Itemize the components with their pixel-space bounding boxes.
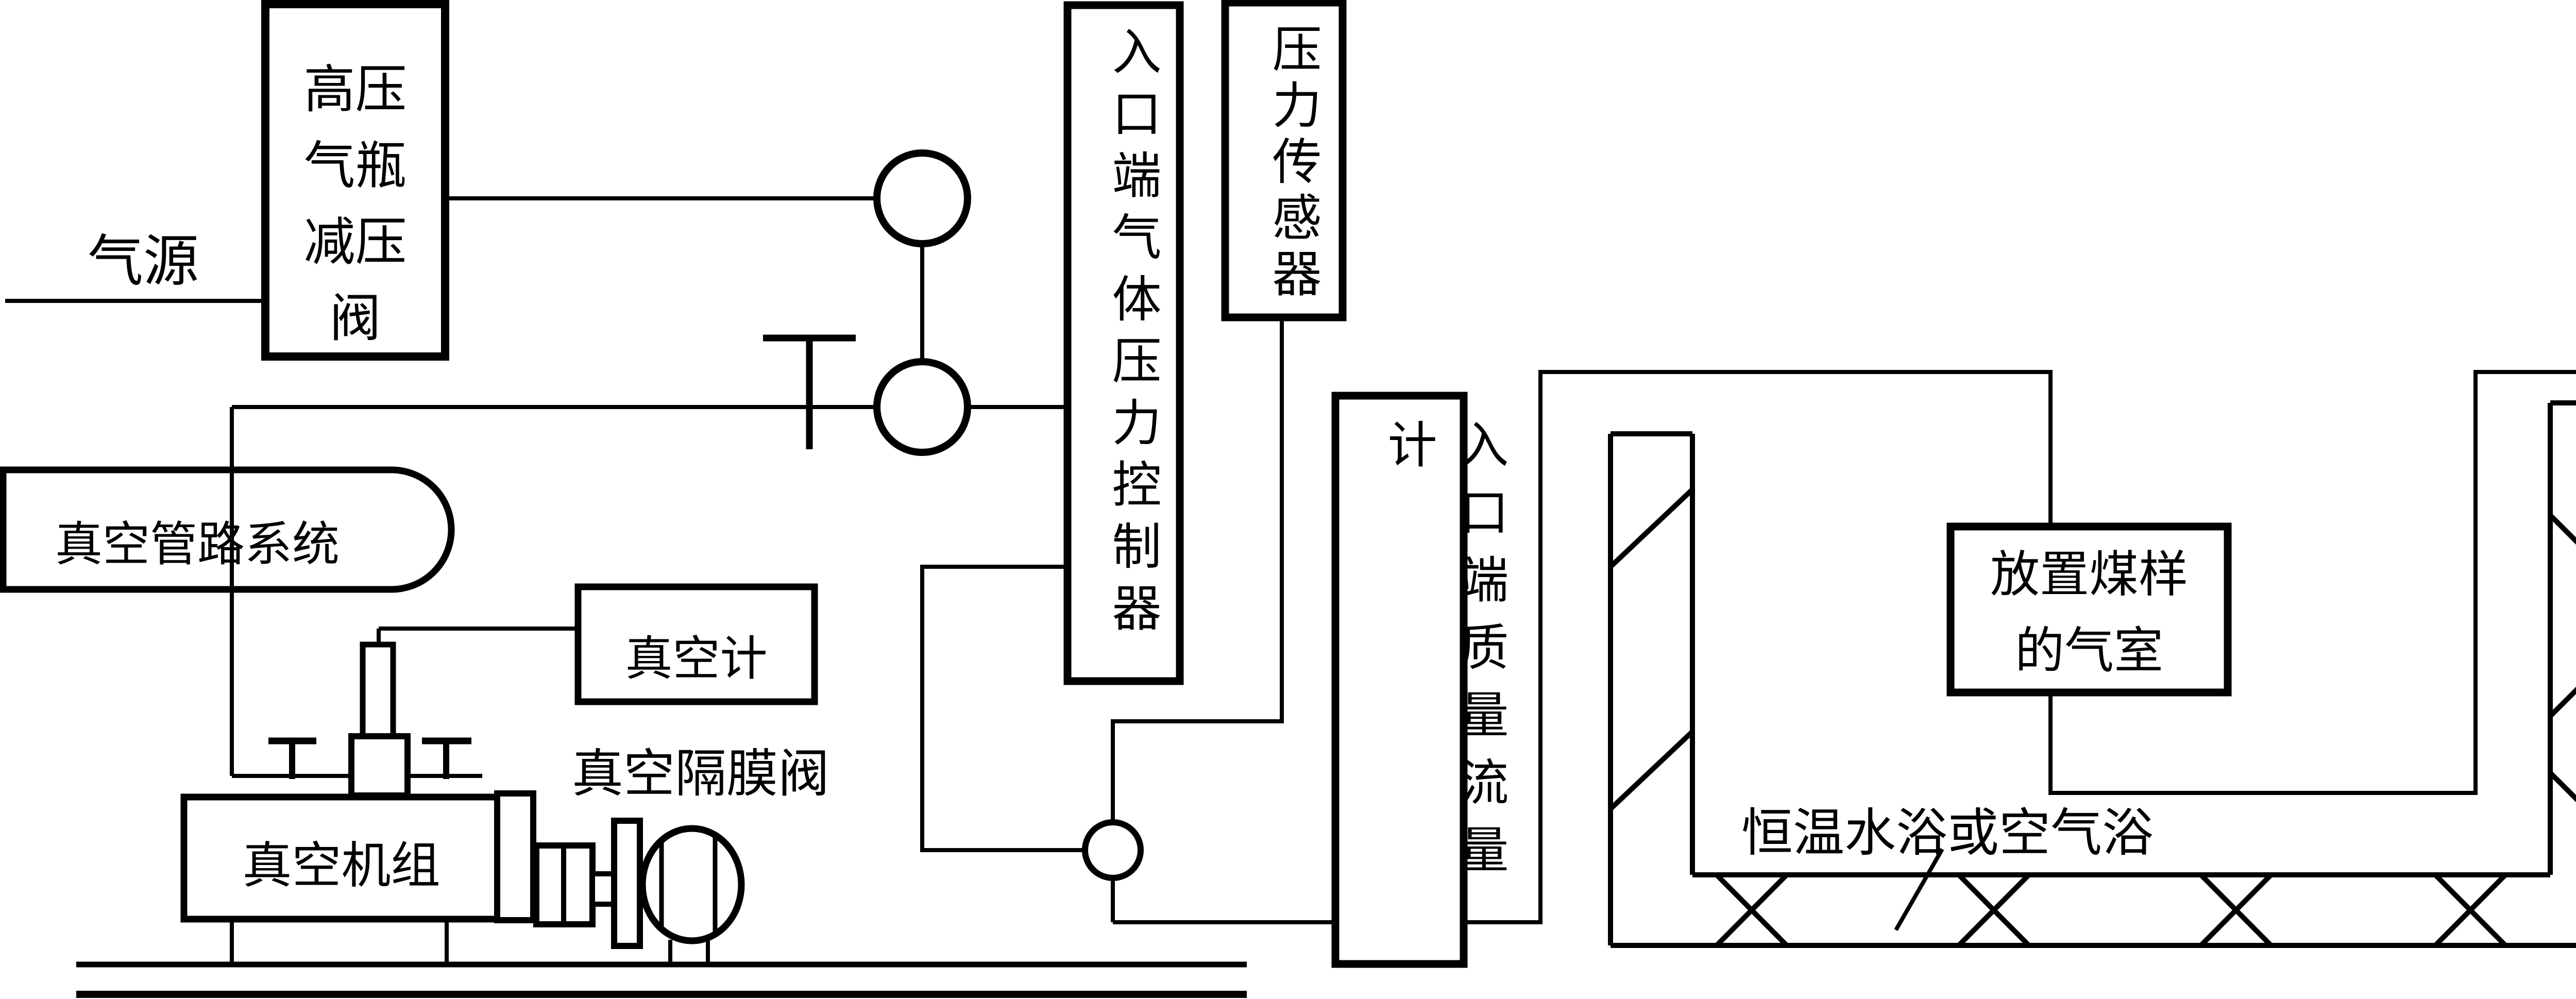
- valve-flange-plate: [614, 821, 640, 946]
- thermostat-bath-label: 恒温水浴或空气浴: [1726, 791, 2169, 866]
- vacuum-pump-unit-label: 真空机组: [184, 825, 499, 897]
- gas-source-label: 气源: [61, 216, 226, 297]
- controller-bypass-loop: [922, 567, 1085, 850]
- pump-port-upper: [363, 645, 393, 736]
- vacuum-diaphragm-valve-label: 真空隔膜阀: [536, 732, 866, 806]
- hp-regulator-label: 高压 气瓶 减压 阀: [265, 52, 445, 357]
- hp-regulator-line1: 高压: [265, 52, 445, 128]
- hp-regulator-line4: 阀: [265, 280, 445, 357]
- diaphragm-valve-body: [642, 828, 741, 941]
- inlet-sensor-label: 压力传感器: [1257, 23, 1328, 304]
- coal-chamber-line1: 放置煤样: [1951, 537, 2228, 613]
- vacuum-line-system-label: 真空管路系统: [3, 506, 392, 574]
- valve-circle-top: [877, 153, 968, 244]
- pump-end-plate: [497, 793, 533, 920]
- coal-gas-adsorption-apparatus-diagram: 气源 高压 气瓶 减压 阀 真空管路系统 真空计 真空隔膜阀 真空机组 入口端气…: [0, 0, 2576, 999]
- inlet-junction-valve: [1085, 822, 1141, 878]
- valve-circle-bottom: [877, 362, 968, 452]
- coal-chamber-label: 放置煤样 的气室: [1951, 537, 2228, 689]
- pump-port-lower: [351, 736, 408, 795]
- bath-left-wall: [1611, 434, 1692, 945]
- bath-bottom-band: [1611, 875, 2576, 945]
- inlet-controller-label: 入口端气体压力控制器: [1096, 26, 1168, 681]
- bath-right-wall: [2550, 403, 2576, 945]
- coupling-neck: [592, 874, 614, 904]
- vacuum-gauge-label: 真空计: [578, 620, 815, 689]
- hp-regulator-line2: 气瓶: [265, 128, 445, 204]
- inlet-flowmeter-label: 入口端质量流量计: [1372, 419, 1515, 944]
- hp-regulator-line3: 减压: [265, 204, 445, 280]
- coal-chamber-line2: 的气室: [1951, 613, 2228, 689]
